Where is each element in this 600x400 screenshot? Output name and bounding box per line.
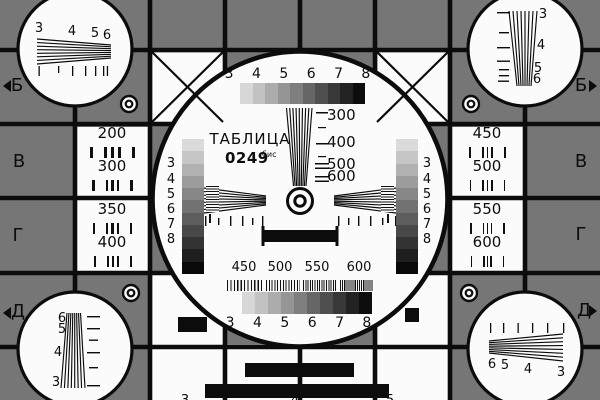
tl-wedge-5: 5: [91, 27, 99, 40]
freq-burst-500: [266, 280, 300, 291]
strip-right-7: 7: [423, 218, 431, 231]
tl-wedge-6: 6: [103, 29, 111, 42]
tr-wedge-4: 4: [537, 39, 545, 52]
grayscale-step: [182, 151, 204, 163]
card-title: ТАБЛИЦА: [209, 132, 290, 147]
grayscale-step: [396, 249, 418, 261]
strip-left-7: 7: [167, 218, 175, 231]
strip-right-3: 3: [423, 157, 431, 170]
tl-wedge-3: 3: [35, 22, 43, 35]
grayscale-step: [303, 83, 316, 104]
line-group-400: [77, 256, 148, 267]
line-group-500: [452, 180, 523, 191]
freq-burst-550: [303, 280, 337, 291]
edge-digit-bottom-2: 4: [291, 394, 299, 400]
edge-digit-top-1: 2: [96, 0, 104, 3]
bl-wedge-3: 3: [52, 376, 60, 389]
grayscale-step: [320, 292, 333, 314]
row-letter-right-g: Г: [576, 226, 587, 244]
grayscale-step: [346, 292, 359, 314]
strip-left-4: 4: [167, 173, 175, 186]
grayscale-step: [265, 83, 278, 104]
grayscale-strip-right: [396, 139, 418, 274]
bl-wedge-4: 4: [54, 346, 62, 359]
br-wedge-6: 6: [488, 358, 496, 371]
tv-test-card: ТАБЛИЦА 0249 бис 3 4 5 6 7 8 3 4 5 6 7 8…: [0, 0, 600, 400]
grayscale-top-scale: 3 4 5 6 7 8: [225, 67, 378, 81]
strip-right-5: 5: [423, 188, 431, 201]
wedge-scale-400: 400: [327, 135, 356, 150]
grayscale-step: [278, 83, 291, 104]
grayscale-step: [182, 262, 204, 274]
fine-lines-left: [206, 186, 219, 212]
grayscale-step: [182, 249, 204, 261]
grayscale-step: [255, 292, 268, 314]
edge-digit-top-3: 4: [231, 0, 239, 3]
edge-digit-bottom-3: 5: [386, 394, 394, 400]
grayscale-step: [290, 83, 303, 104]
grayscale-bottom: [242, 292, 372, 314]
grayscale-bottom-scale: 3 4 5 6 7 8: [226, 316, 379, 330]
grayscale-step: [281, 292, 294, 314]
strip-right-4: 4: [423, 173, 431, 186]
br-wedge-3: 3: [557, 366, 565, 379]
test-card-graphics: [0, 0, 600, 400]
grayscale-step: [359, 292, 372, 314]
grayscale-step: [307, 292, 320, 314]
row-letter-left-d: Д: [11, 303, 25, 321]
grayscale-step: [396, 151, 418, 163]
grayscale-step: [396, 262, 418, 274]
box-label-350: 350: [98, 202, 127, 217]
freq-burst-450: [227, 280, 263, 291]
card-number-suffix: бис: [262, 151, 277, 159]
grayscale-top: [240, 83, 365, 104]
edge-digit-bottom-1: 3: [181, 394, 189, 400]
grayscale-step: [253, 83, 266, 104]
grayscale-step: [182, 213, 204, 225]
grayscale-step: [396, 188, 418, 200]
strip-left-3: 3: [167, 157, 175, 170]
row-letter-left-g: Г: [13, 227, 24, 245]
grayscale-step: [396, 225, 418, 237]
grayscale-step: [268, 292, 281, 314]
grayscale-step: [340, 83, 353, 104]
line-group-600: [452, 256, 523, 267]
strip-right-6: 6: [423, 203, 431, 216]
grayscale-step: [333, 292, 346, 314]
grayscale-step: [396, 139, 418, 151]
grayscale-step: [315, 83, 328, 104]
strip-left-6: 6: [167, 203, 175, 216]
grayscale-step: [396, 213, 418, 225]
grayscale-step: [242, 292, 255, 314]
edge-digit-top-6: 7: [486, 0, 494, 3]
fine-lines-right-tick: [387, 214, 389, 223]
tr-wedge-6: 6: [533, 73, 541, 86]
row-letter-left-b: Б: [11, 77, 23, 95]
grayscale-strip-left: [182, 139, 204, 274]
grayscale-step: [182, 176, 204, 188]
strip-right-8: 8: [423, 233, 431, 246]
wedge-scale-300: 300: [327, 108, 356, 123]
grayscale-step: [182, 200, 204, 212]
freq-label-500: 500: [268, 261, 293, 274]
box-label-200: 200: [98, 126, 127, 141]
edge-digit-top-4: 5: [306, 0, 314, 3]
box-label-500: 500: [473, 159, 502, 174]
grayscale-step: [182, 225, 204, 237]
row-letter-right-v: В: [575, 153, 587, 171]
strip-left-8: 8: [167, 233, 175, 246]
box-label-300: 300: [98, 159, 127, 174]
grayscale-step: [294, 292, 307, 314]
edge-digit-top-5: 6: [381, 0, 389, 3]
grayscale-step: [396, 237, 418, 249]
grayscale-step: [353, 83, 366, 104]
grayscale-step: [396, 164, 418, 176]
row-letter-left-v: В: [13, 153, 25, 171]
freq-label-450: 450: [232, 261, 257, 274]
fine-lines-left-tick: [209, 214, 211, 223]
edge-digit-top-2: 3: [156, 0, 164, 3]
br-wedge-5: 5: [501, 359, 509, 372]
box-label-600: 600: [473, 235, 502, 250]
freq-label-550: 550: [305, 261, 330, 274]
grayscale-step: [182, 237, 204, 249]
grayscale-step: [182, 164, 204, 176]
br-wedge-4: 4: [524, 363, 532, 376]
grayscale-step: [240, 83, 253, 104]
line-group-300: [77, 180, 148, 191]
grayscale-step: [182, 188, 204, 200]
grayscale-step: [396, 176, 418, 188]
box-label-450: 450: [473, 126, 502, 141]
tr-wedge-3: 3: [539, 8, 547, 21]
grayscale-step: [328, 83, 341, 104]
freq-burst-600: [340, 280, 373, 291]
grayscale-step: [182, 139, 204, 151]
grayscale-step: [396, 200, 418, 212]
row-letter-right-d: Д: [577, 302, 591, 320]
strip-left-5: 5: [167, 188, 175, 201]
fine-lines-right: [381, 186, 394, 212]
box-label-550: 550: [473, 202, 502, 217]
tl-wedge-4: 4: [68, 25, 76, 38]
wedge-scale-600: 600: [327, 169, 356, 184]
box-label-400: 400: [98, 235, 127, 250]
bl-wedge-5: 5: [58, 323, 66, 336]
freq-label-600: 600: [347, 261, 372, 274]
row-letter-right-b: Б: [575, 77, 587, 95]
